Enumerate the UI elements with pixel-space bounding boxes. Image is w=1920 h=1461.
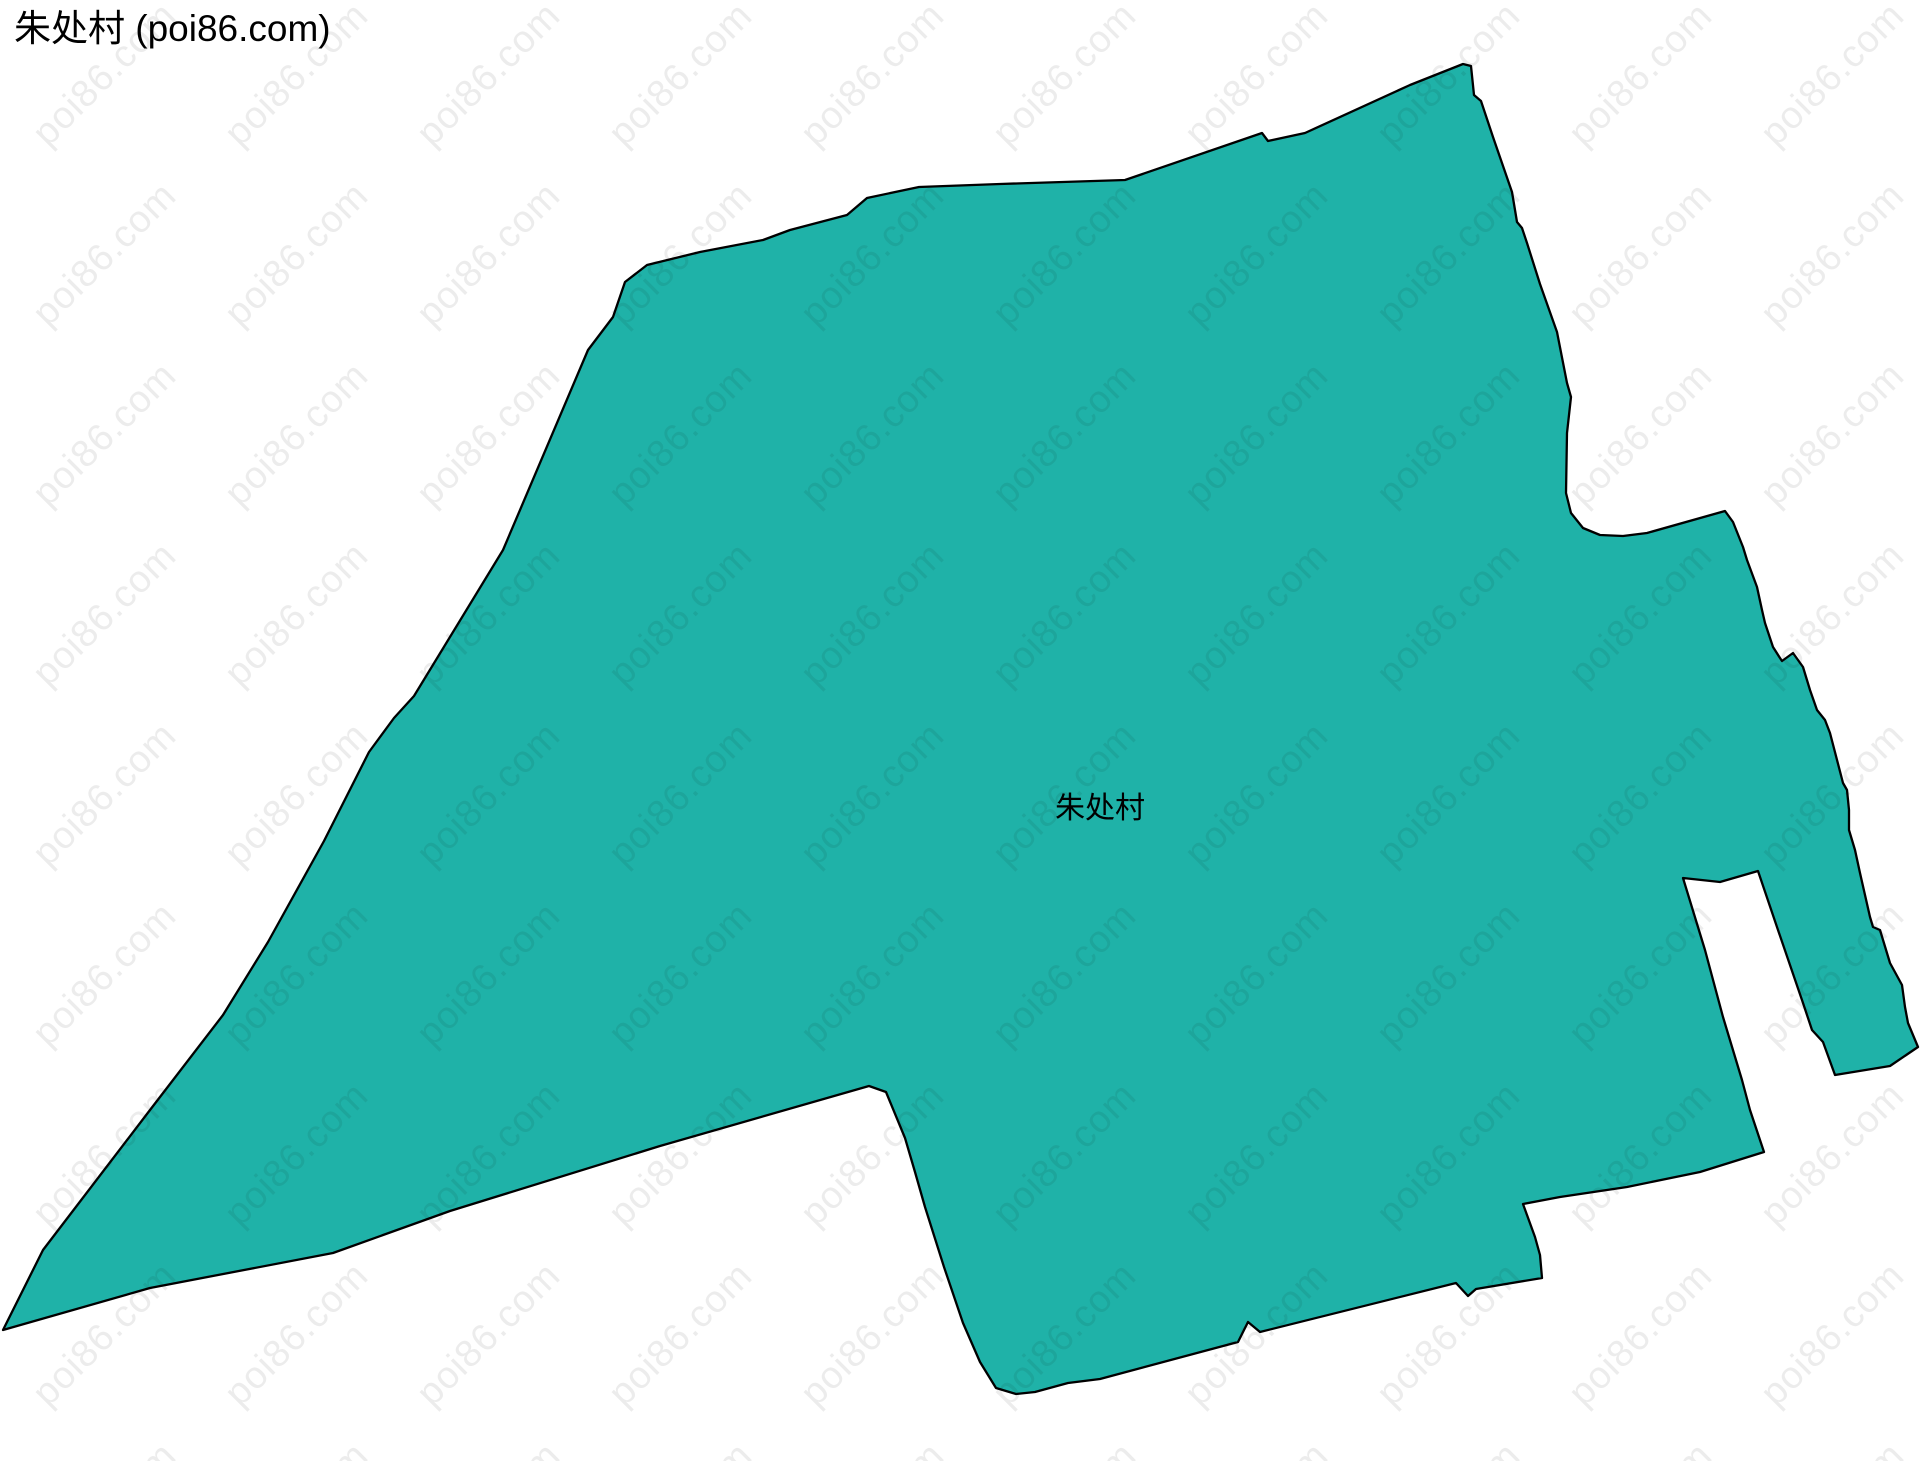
map-page: poi86.com 朱处村 朱处村 (poi86.com) [0, 0, 1920, 1461]
watermark-layer [0, 0, 1920, 1461]
village-boundary-map: poi86.com 朱处村 [0, 0, 1920, 1461]
page-title: 朱处村 (poi86.com) [14, 6, 331, 52]
region-label: 朱处村 [1055, 792, 1145, 825]
